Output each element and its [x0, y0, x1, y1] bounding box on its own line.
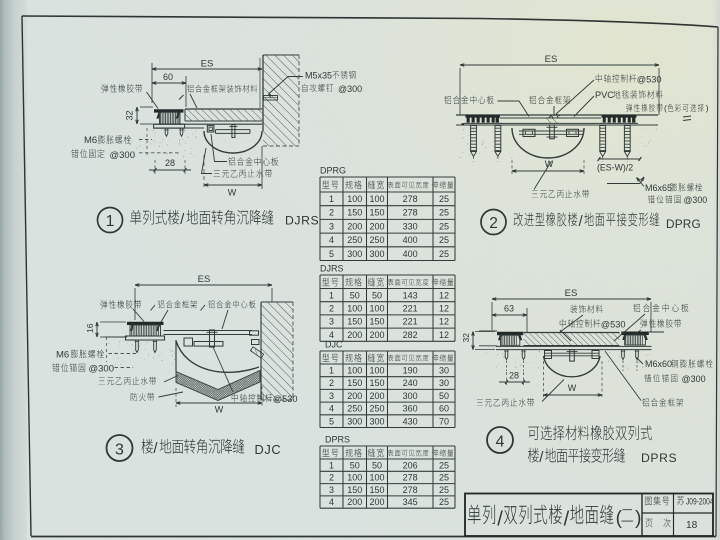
svg-text:32: 32	[461, 333, 471, 343]
svg-text:3: 3	[115, 442, 124, 459]
svg-text:250: 250	[347, 235, 362, 245]
svg-text:25: 25	[439, 221, 449, 231]
svg-text:200: 200	[347, 391, 362, 401]
svg-text:@530: @530	[601, 319, 626, 329]
svg-text:25: 25	[439, 249, 449, 259]
svg-text:200: 200	[369, 330, 384, 340]
svg-text:200: 200	[347, 497, 362, 507]
svg-text:100: 100	[369, 194, 384, 204]
svg-text:(ES-W)/2: (ES-W)/2	[597, 163, 633, 173]
svg-text:400: 400	[403, 235, 418, 245]
svg-text:278: 278	[403, 208, 418, 218]
svg-text:150: 150	[369, 208, 384, 218]
svg-text:2: 2	[329, 378, 334, 388]
svg-text:300: 300	[403, 391, 418, 401]
svg-text:/: /	[497, 509, 503, 531]
svg-text:100: 100	[347, 194, 362, 204]
svg-text:12: 12	[439, 330, 449, 340]
svg-text:100: 100	[347, 366, 362, 376]
svg-text:DJRS: DJRS	[320, 264, 344, 274]
svg-text:M6: M6	[56, 349, 69, 360]
svg-text:250: 250	[369, 404, 384, 414]
svg-text:(: (	[664, 103, 667, 113]
svg-text:50: 50	[350, 290, 360, 300]
svg-text:150: 150	[347, 485, 362, 495]
svg-text:@300: @300	[682, 374, 706, 384]
svg-text:221: 221	[403, 317, 418, 327]
svg-text:190: 190	[403, 366, 418, 376]
svg-text:4: 4	[329, 235, 334, 245]
svg-text:5: 5	[329, 416, 334, 426]
svg-text:ES: ES	[201, 59, 214, 70]
svg-text:DPRS: DPRS	[325, 435, 350, 445]
svg-text:16: 16	[85, 323, 95, 333]
svg-text:278: 278	[403, 194, 418, 204]
svg-text:150: 150	[347, 208, 362, 218]
svg-text:100: 100	[369, 473, 384, 483]
svg-text:25: 25	[439, 194, 449, 204]
svg-text:25: 25	[439, 460, 449, 470]
svg-text:4: 4	[329, 404, 334, 414]
svg-text:ES: ES	[198, 274, 211, 285]
svg-text:ES: ES	[565, 288, 578, 299]
svg-text:18: 18	[686, 520, 698, 531]
svg-text:W: W	[228, 188, 237, 198]
svg-text:50: 50	[439, 391, 449, 401]
svg-text:100: 100	[347, 473, 362, 483]
svg-text:150: 150	[347, 378, 362, 388]
svg-text:240: 240	[403, 378, 418, 388]
svg-text:278: 278	[403, 485, 418, 495]
svg-text:4: 4	[329, 497, 334, 507]
svg-text:50: 50	[350, 460, 360, 470]
svg-text:/: /	[564, 509, 570, 531]
svg-text:@530: @530	[637, 74, 662, 84]
svg-text:2: 2	[329, 473, 334, 483]
svg-text:): )	[635, 508, 641, 529]
svg-text:50: 50	[372, 290, 382, 300]
svg-text:25: 25	[439, 208, 449, 218]
svg-text:300: 300	[347, 249, 362, 259]
svg-text:3: 3	[329, 317, 334, 327]
svg-text:M6x60: M6x60	[645, 359, 672, 369]
svg-text:430: 430	[403, 416, 418, 426]
svg-text:): )	[706, 103, 709, 113]
svg-text:25: 25	[439, 235, 449, 245]
svg-text:2: 2	[329, 208, 334, 218]
svg-text:2: 2	[489, 215, 498, 232]
svg-text:70: 70	[439, 416, 449, 426]
svg-text:28: 28	[165, 158, 175, 168]
svg-text:4: 4	[329, 330, 334, 340]
svg-text:DJC: DJC	[255, 442, 282, 457]
svg-text:12: 12	[439, 317, 449, 327]
svg-text:300: 300	[369, 249, 384, 259]
svg-text:345: 345	[403, 497, 418, 507]
svg-text:60: 60	[439, 404, 449, 414]
svg-text:3: 3	[329, 221, 334, 231]
svg-text:300: 300	[369, 416, 384, 426]
svg-text:100: 100	[347, 304, 362, 314]
svg-text:M6: M6	[84, 135, 97, 146]
svg-text:PVC: PVC	[595, 90, 614, 100]
svg-text:200: 200	[369, 391, 384, 401]
svg-text:250: 250	[347, 404, 362, 414]
svg-text:250: 250	[369, 235, 384, 245]
svg-text:360: 360	[403, 404, 418, 414]
svg-text:@300: @300	[89, 363, 115, 374]
svg-text:4: 4	[496, 434, 505, 451]
svg-text:25: 25	[439, 497, 449, 507]
svg-text:200: 200	[347, 330, 362, 340]
svg-text:150: 150	[369, 317, 384, 327]
svg-text:DJRS: DJRS	[285, 214, 319, 228]
svg-text:@300: @300	[110, 150, 136, 161]
svg-text:25: 25	[439, 485, 449, 495]
svg-text:278: 278	[403, 473, 418, 483]
svg-text:100: 100	[369, 366, 384, 376]
svg-text:150: 150	[369, 485, 384, 495]
svg-text:30: 30	[439, 378, 449, 388]
svg-text:50: 50	[372, 460, 382, 470]
svg-text:1: 1	[329, 194, 334, 204]
svg-text:M5x35: M5x35	[305, 71, 332, 81]
svg-text:12: 12	[439, 290, 449, 300]
svg-text:32: 32	[125, 110, 135, 120]
svg-text:150: 150	[347, 317, 362, 327]
svg-text:1: 1	[329, 366, 334, 376]
svg-text:143: 143	[403, 290, 418, 300]
svg-text:400: 400	[403, 249, 418, 259]
svg-text:5: 5	[329, 249, 334, 259]
svg-text:1: 1	[329, 290, 334, 300]
svg-text:1: 1	[329, 460, 334, 470]
svg-text:3: 3	[329, 391, 334, 401]
svg-text:25: 25	[439, 473, 449, 483]
svg-text:3: 3	[329, 485, 334, 495]
svg-text:DPRG: DPRG	[320, 166, 346, 176]
svg-text:200: 200	[369, 497, 384, 507]
svg-text:DPRS: DPRS	[641, 451, 677, 465]
svg-text:@300: @300	[684, 195, 708, 205]
svg-text:@300: @300	[338, 84, 362, 94]
svg-text:150: 150	[369, 378, 384, 388]
svg-text:282: 282	[403, 330, 418, 340]
svg-text:DJC: DJC	[325, 340, 343, 350]
svg-text:28: 28	[509, 371, 519, 381]
svg-text:ES: ES	[545, 54, 558, 65]
svg-text:M6x65: M6x65	[645, 183, 672, 193]
svg-text:(: (	[616, 508, 623, 529]
svg-text:206: 206	[403, 460, 418, 470]
svg-text:330: 330	[403, 221, 418, 231]
svg-text:W: W	[215, 405, 224, 415]
svg-text:63: 63	[504, 304, 514, 314]
svg-text:12: 12	[439, 304, 449, 314]
svg-text:200: 200	[347, 221, 362, 231]
svg-text:@530: @530	[273, 394, 298, 404]
svg-text:60: 60	[163, 72, 173, 82]
svg-text:2: 2	[329, 304, 334, 314]
svg-text:J09-2004: J09-2004	[686, 497, 714, 507]
svg-text:W: W	[568, 383, 577, 393]
svg-text:DPRG: DPRG	[666, 217, 701, 231]
svg-text:100: 100	[369, 304, 384, 314]
svg-text:1: 1	[106, 213, 115, 230]
svg-text:30: 30	[439, 366, 449, 376]
svg-text:221: 221	[403, 304, 418, 314]
svg-text:300: 300	[347, 416, 362, 426]
svg-text:200: 200	[369, 221, 384, 231]
